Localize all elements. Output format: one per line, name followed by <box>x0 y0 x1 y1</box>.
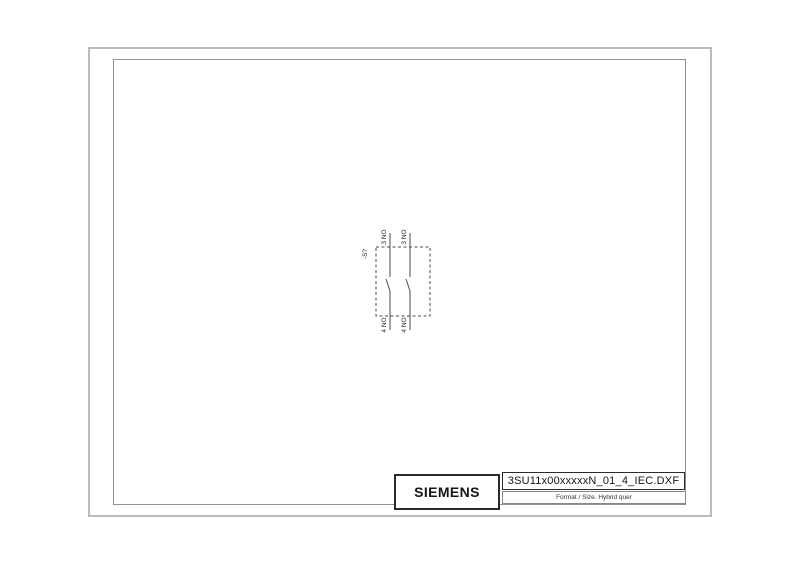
no-contact-1 <box>386 233 390 330</box>
format-size-cell: Format / Size. Hybrid quer <box>502 491 686 504</box>
contact-1-top-terminal-label: 3 NO <box>382 229 389 244</box>
drawing-sheet: -S? 3 NO 3 NO 4 NO 4 NO SIEMENS 3SU11x00… <box>0 0 800 565</box>
contact-2-top-terminal-label: 3 NO <box>402 229 409 244</box>
function-boundary-dashed-box <box>376 247 430 316</box>
contact-2-bottom-terminal-label: 4 NO <box>402 317 409 332</box>
drawing-filename-cell: 3SU11x00xxxxxN_01_4_IEC.DXF <box>502 472 685 490</box>
contact-1-switch-blade <box>386 279 390 291</box>
contact-2-switch-blade <box>406 279 410 291</box>
siemens-logo: SIEMENS <box>394 474 500 510</box>
device-designation-label: -S? <box>363 249 370 259</box>
no-contact-2 <box>406 233 410 330</box>
contact-1-bottom-terminal-label: 4 NO <box>382 317 389 332</box>
